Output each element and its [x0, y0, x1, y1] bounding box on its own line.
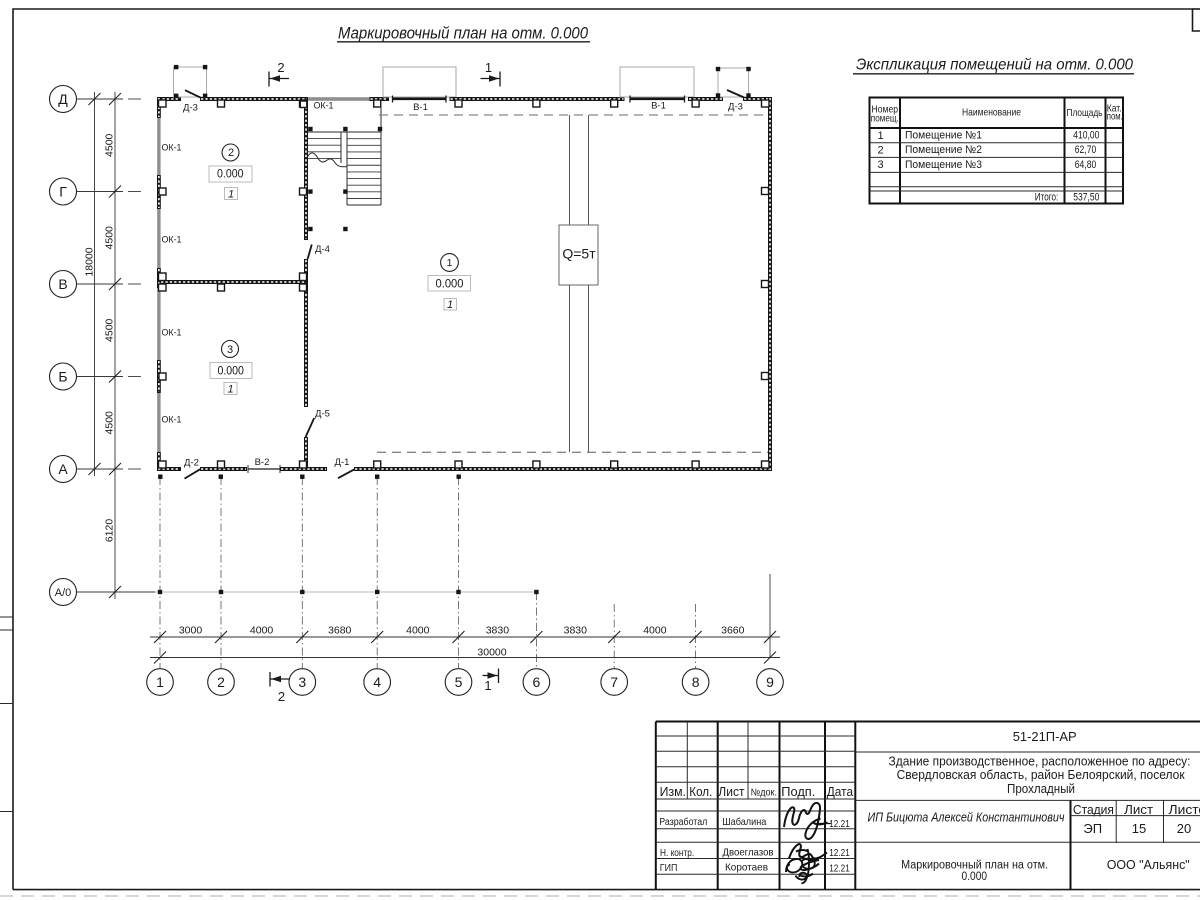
- svg-text:5: 5: [455, 674, 463, 690]
- svg-text:18000: 18000: [84, 247, 96, 276]
- svg-text:3660: 3660: [721, 625, 745, 637]
- svg-text:4: 4: [373, 674, 381, 690]
- svg-text:3: 3: [298, 674, 306, 690]
- svg-text:ОК-1: ОК-1: [314, 101, 334, 112]
- svg-text:Дата: Дата: [827, 784, 854, 799]
- svg-text:Q=5т: Q=5т: [562, 246, 596, 262]
- svg-text:1: 1: [156, 674, 164, 690]
- svg-text:1: 1: [484, 678, 491, 693]
- svg-text:Помещение №2: Помещение №2: [905, 144, 982, 156]
- svg-text:6120: 6120: [104, 519, 116, 543]
- svg-text:1: 1: [228, 188, 234, 200]
- svg-text:Свердловская область, район Бе: Свердловская область, район Белоярский, …: [897, 768, 1186, 782]
- svg-text:537,50: 537,50: [1073, 192, 1099, 204]
- svg-text:Маркировочный план на отм. 0.0: Маркировочный план на отм. 0.000: [338, 25, 589, 43]
- svg-text:Двоеглазов: Двоеглазов: [723, 847, 774, 859]
- svg-text:410,00: 410,00: [1073, 130, 1099, 142]
- svg-text:В: В: [58, 276, 67, 292]
- svg-text:В-1: В-1: [651, 101, 666, 112]
- svg-text:Стадия: Стадия: [1073, 803, 1114, 817]
- svg-text:В-2: В-2: [255, 457, 270, 468]
- svg-text:ОК-1: ОК-1: [162, 415, 182, 426]
- svg-text:0.000: 0.000: [217, 167, 244, 181]
- svg-text:2: 2: [217, 674, 225, 690]
- svg-text:9: 9: [766, 674, 774, 690]
- svg-text:0.000: 0.000: [436, 279, 464, 291]
- svg-text:4500: 4500: [104, 411, 116, 435]
- svg-text:7: 7: [610, 674, 618, 690]
- svg-text:ИП Бицюта Алексей Константинов: ИП Бицюта Алексей Константинович: [868, 811, 1065, 825]
- svg-text:помещ.: помещ.: [871, 112, 899, 124]
- svg-text:№док.: №док.: [751, 788, 777, 799]
- svg-text:3830: 3830: [486, 625, 510, 637]
- svg-text:64,80: 64,80: [1075, 159, 1097, 171]
- svg-text:Б: Б: [58, 369, 67, 385]
- svg-text:51-21П-АР: 51-21П-АР: [1013, 729, 1077, 744]
- svg-text:3: 3: [877, 159, 883, 171]
- svg-text:4500: 4500: [104, 133, 116, 157]
- svg-text:Н. контр.: Н. контр.: [660, 848, 694, 859]
- svg-text:Коротаев: Коротаев: [725, 861, 768, 873]
- svg-text:1: 1: [485, 60, 492, 75]
- svg-text:6: 6: [533, 674, 541, 690]
- svg-text:4500: 4500: [104, 226, 116, 250]
- svg-text:1: 1: [447, 299, 453, 311]
- svg-text:2: 2: [278, 689, 285, 704]
- svg-text:Шабалина: Шабалина: [722, 816, 766, 828]
- svg-text:пом.: пом.: [1107, 112, 1123, 123]
- svg-text:ГИП: ГИП: [660, 862, 678, 874]
- svg-text:30000: 30000: [477, 647, 506, 659]
- svg-text:Изм.: Изм.: [660, 784, 686, 799]
- svg-text:Д: Д: [58, 91, 68, 107]
- svg-text:1: 1: [447, 257, 453, 269]
- svg-text:Экспликация помещений на отм.: Экспликация помещений на отм. 0.000: [856, 57, 1133, 74]
- svg-text:Помещение №1: Помещение №1: [905, 130, 982, 142]
- svg-text:12.21: 12.21: [829, 847, 850, 859]
- svg-text:4000: 4000: [643, 625, 667, 637]
- svg-text:2: 2: [277, 60, 284, 75]
- svg-text:А: А: [58, 461, 68, 477]
- svg-text:4500: 4500: [104, 318, 116, 342]
- svg-text:Наименование: Наименование: [962, 107, 1021, 119]
- svg-text:ОК-1: ОК-1: [162, 143, 182, 154]
- svg-text:ОК-1: ОК-1: [162, 235, 182, 246]
- svg-text:Г: Г: [59, 184, 67, 200]
- svg-text:Д-2: Д-2: [184, 458, 199, 469]
- svg-text:Д-4: Д-4: [315, 244, 330, 255]
- svg-text:Итого:: Итого:: [1035, 192, 1059, 204]
- svg-text:Д-3: Д-3: [183, 103, 198, 114]
- svg-text:Лист: Лист: [718, 784, 744, 799]
- svg-text:12.21: 12.21: [829, 863, 850, 875]
- svg-text:Помещение №3: Помещение №3: [905, 159, 982, 171]
- svg-text:20: 20: [1177, 821, 1191, 836]
- svg-text:Здание производственное, распо: Здание производственное, расположенное п…: [889, 754, 1191, 768]
- svg-text:12.21: 12.21: [829, 818, 850, 830]
- svg-text:1: 1: [227, 383, 233, 395]
- svg-text:3830: 3830: [564, 625, 588, 637]
- svg-text:3680: 3680: [328, 625, 352, 637]
- svg-text:Лист: Лист: [1124, 803, 1153, 817]
- svg-text:3: 3: [227, 344, 233, 356]
- svg-text:Д-1: Д-1: [335, 457, 350, 468]
- svg-text:Листов: Листов: [1169, 803, 1200, 817]
- svg-text:Подп.: Подп.: [781, 784, 815, 799]
- svg-text:Маркировочный план на отм.: Маркировочный план на отм.: [901, 859, 1048, 871]
- svg-text:15: 15: [1132, 821, 1146, 836]
- svg-text:0.000: 0.000: [962, 871, 988, 883]
- svg-text:1: 1: [877, 130, 883, 142]
- svg-text:2: 2: [228, 147, 234, 159]
- svg-text:3000: 3000: [179, 625, 203, 637]
- svg-text:4000: 4000: [250, 625, 274, 637]
- svg-text:В-1: В-1: [413, 102, 428, 113]
- svg-text:0.000: 0.000: [217, 363, 244, 377]
- svg-text:Д-3: Д-3: [728, 102, 743, 113]
- svg-text:Кол.: Кол.: [689, 784, 712, 799]
- svg-text:ОК-1: ОК-1: [162, 328, 182, 339]
- svg-text:А/0: А/0: [55, 587, 72, 599]
- svg-text:62,70: 62,70: [1075, 144, 1097, 156]
- svg-text:ООО "Альянс": ООО "Альянс": [1107, 857, 1190, 872]
- svg-text:Прохладный: Прохладный: [1007, 782, 1075, 796]
- svg-text:Разработал: Разработал: [659, 816, 707, 828]
- svg-text:Площадь: Площадь: [1067, 107, 1103, 119]
- svg-text:Д-5: Д-5: [315, 409, 330, 420]
- svg-text:ЭП: ЭП: [1083, 821, 1102, 836]
- svg-text:8: 8: [692, 674, 700, 690]
- svg-text:4000: 4000: [406, 625, 430, 637]
- svg-text:2: 2: [877, 144, 883, 156]
